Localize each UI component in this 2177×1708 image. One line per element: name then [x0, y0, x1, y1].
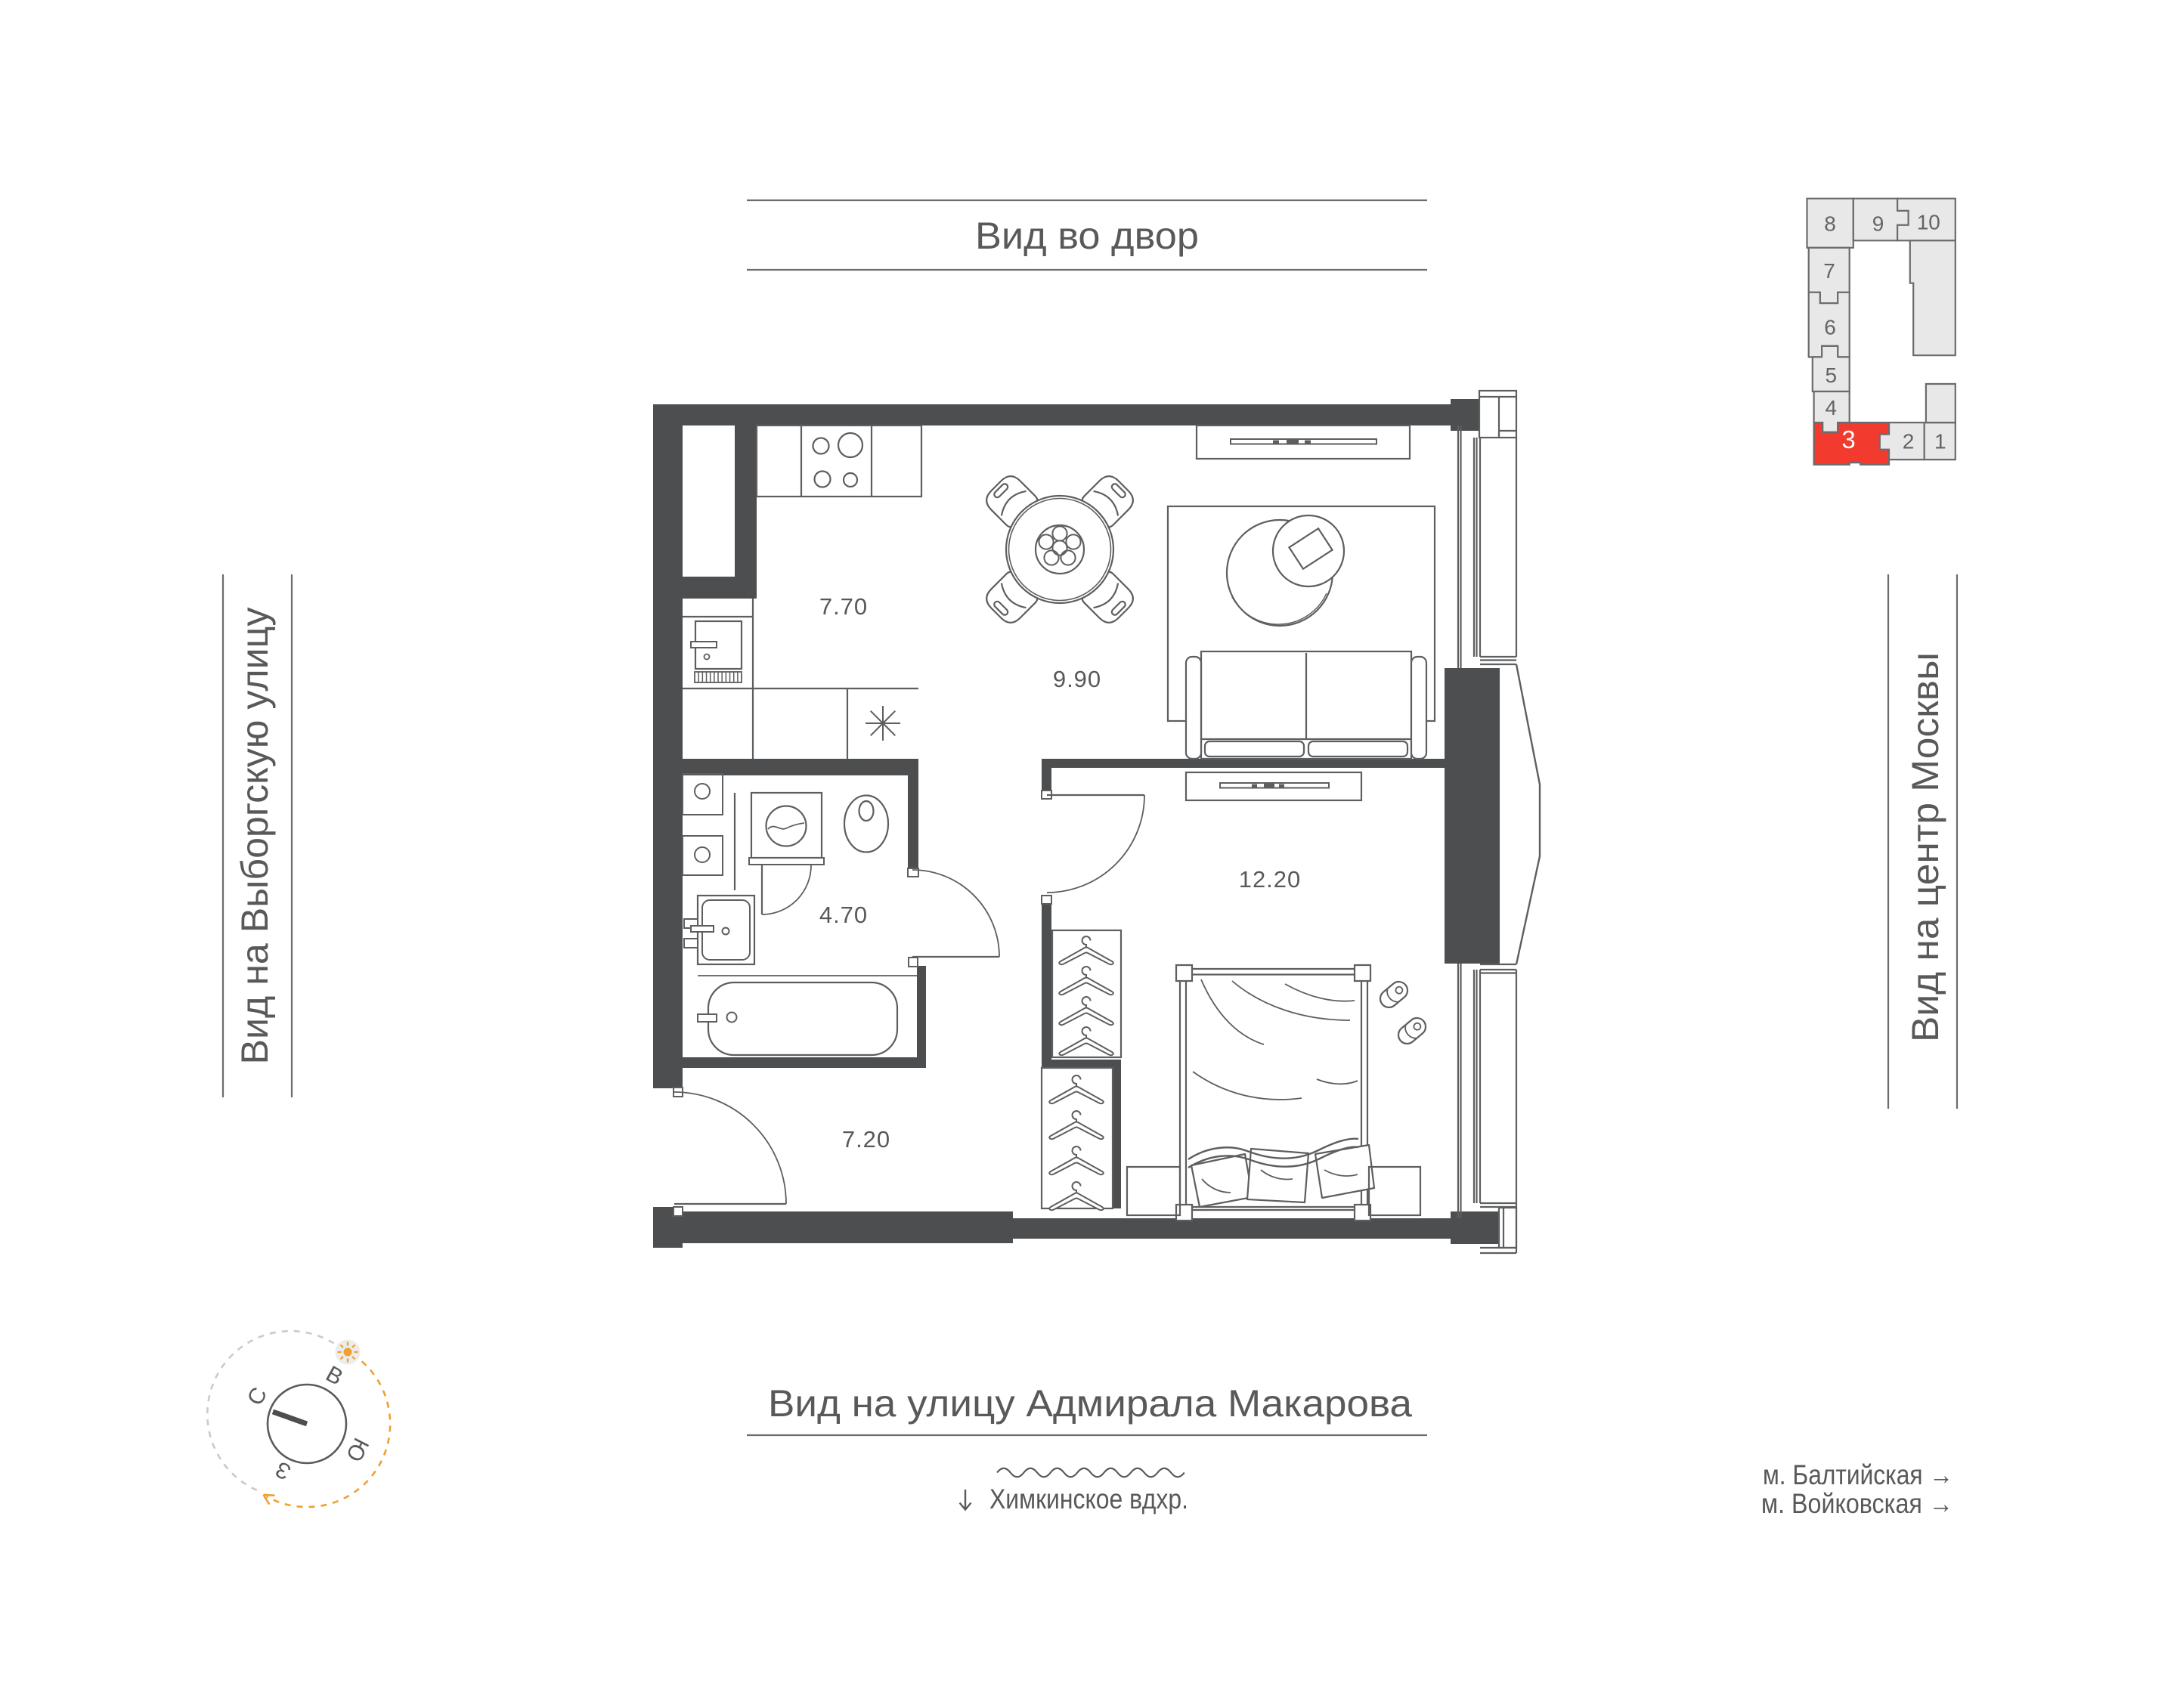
svg-text:7: 7 [1823, 259, 1835, 283]
svg-text:7.70: 7.70 [819, 593, 868, 620]
svg-text:Вид на Выборгскую улицу: Вид на Выборгскую улицу [234, 608, 276, 1065]
svg-text:Вид на центр Москвы: Вид на центр Москвы [1904, 652, 1946, 1042]
svg-text:5: 5 [1826, 364, 1838, 387]
svg-text:12.20: 12.20 [1239, 866, 1302, 893]
svg-text:1: 1 [1934, 430, 1946, 453]
svg-text:7.20: 7.20 [842, 1126, 890, 1153]
svg-text:м. Войковская →: м. Войковская → [1761, 1488, 1953, 1519]
svg-text:Химкинское вдхр.: Химкинское вдхр. [989, 1484, 1188, 1515]
svg-text:4: 4 [1826, 396, 1838, 419]
svg-text:10: 10 [1917, 210, 1940, 234]
svg-text:4.70: 4.70 [819, 902, 868, 928]
svg-text:2: 2 [1903, 430, 1915, 453]
svg-text:9.90: 9.90 [1053, 666, 1101, 692]
svg-text:8: 8 [1824, 212, 1836, 236]
svg-text:3: 3 [1841, 425, 1855, 453]
svg-text:м. Балтийская →: м. Балтийская → [1763, 1459, 1953, 1490]
svg-text:Вид на улицу Адмирала Макарова: Вид на улицу Адмирала Макарова [768, 1382, 1412, 1425]
svg-text:6: 6 [1824, 315, 1836, 339]
svg-text:Вид во двор: Вид во двор [975, 215, 1199, 257]
svg-text:9: 9 [1872, 212, 1884, 236]
